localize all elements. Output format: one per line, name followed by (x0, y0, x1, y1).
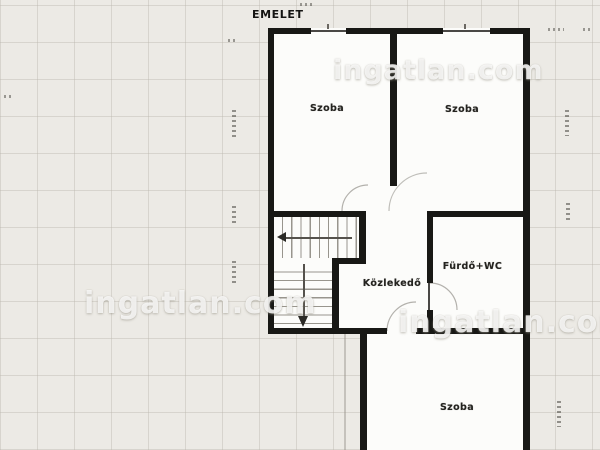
room-label-szoba-left: Szoba (277, 103, 377, 114)
wall-bathroom-left-upper (427, 217, 433, 283)
dimension-mark (4, 95, 12, 98)
window-tick-1 (327, 24, 329, 29)
room-label-furdo-wc: Fürdő+WC (425, 261, 520, 272)
floor-title: EMELET (252, 8, 304, 21)
room-label-szoba-bottom: Szoba (407, 402, 507, 413)
dimension-mark (566, 203, 570, 220)
wall-bottom-segment-2 (416, 328, 530, 334)
room-label-kozlekedo: Közlekedő (343, 278, 441, 289)
wall-top-segment-1 (268, 28, 311, 34)
window-line-1 (311, 30, 346, 32)
dimension-mark (583, 28, 592, 31)
wall-bottom-segment-1 (268, 328, 387, 334)
wall-stair-top (268, 211, 366, 217)
dimension-mark (228, 39, 235, 42)
wall-outer-right (523, 28, 530, 450)
wall-outer-left (268, 28, 274, 334)
dimension-mark (232, 261, 236, 284)
wall-bathroom-top (427, 211, 523, 217)
wall-stair-right-lower (332, 264, 339, 334)
floor-plan: EMELET Szoba Szoba Fürdő+WC Közlekedő Sz… (0, 0, 600, 450)
wall-stair-right-upper (359, 217, 366, 262)
wall-bottom-room-left (360, 334, 367, 450)
door-swing-arcs (0, 0, 600, 450)
wall-room-divider (390, 34, 397, 186)
window-line-2 (443, 30, 490, 32)
dimension-mark (548, 28, 564, 31)
door-arc-bottom-room (387, 302, 416, 331)
room-label-szoba-right: Szoba (412, 104, 512, 115)
window-tick-2 (464, 24, 466, 29)
dimension-mark (232, 110, 236, 140)
dimension-mark (232, 206, 236, 223)
door-arc-left-room (342, 185, 368, 211)
dimension-mark (557, 401, 561, 427)
dimension-mark (565, 110, 569, 136)
dimension-mark (300, 3, 314, 6)
